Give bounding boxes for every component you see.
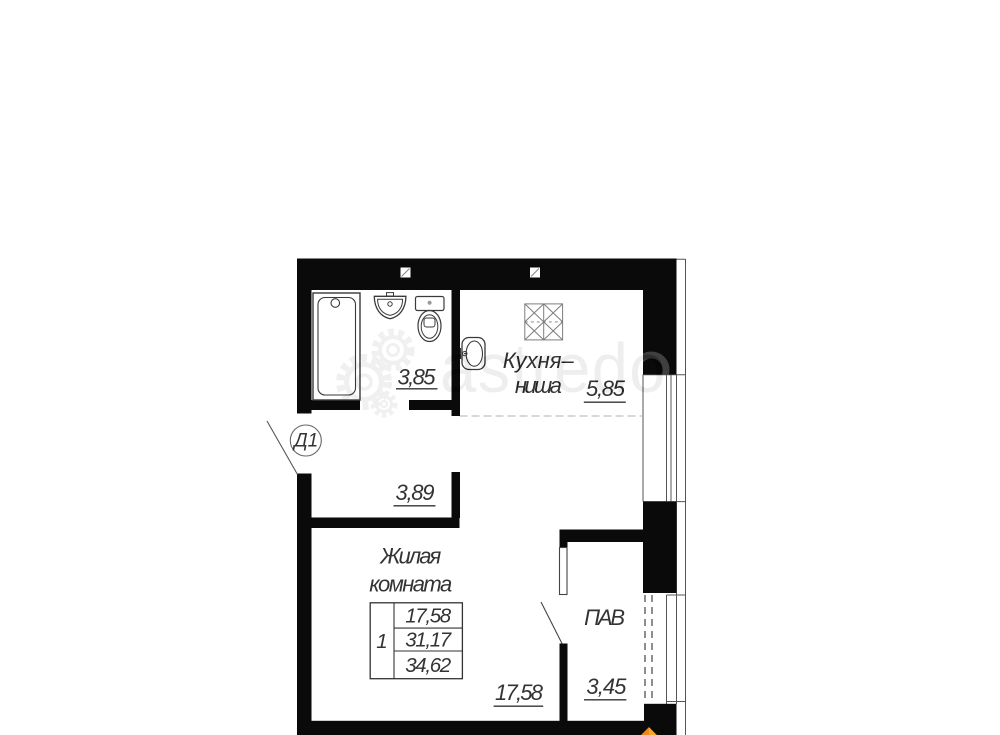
svg-text:Жилая: Жилая — [379, 544, 441, 569]
svg-text:Д1: Д1 — [292, 431, 318, 452]
svg-text:34,62: 34,62 — [405, 654, 452, 677]
svg-text:3,45: 3,45 — [586, 674, 627, 699]
svg-text:3,85: 3,85 — [398, 365, 437, 390]
svg-text:ПАВ: ПАВ — [584, 605, 625, 630]
svg-text:17,58: 17,58 — [495, 680, 544, 705]
svg-text:3,89: 3,89 — [396, 480, 435, 505]
svg-text:17,58: 17,58 — [405, 605, 452, 628]
svg-text:31,17: 31,17 — [405, 629, 453, 652]
svg-text:комната: комната — [369, 572, 452, 597]
svg-text:1: 1 — [376, 630, 387, 653]
